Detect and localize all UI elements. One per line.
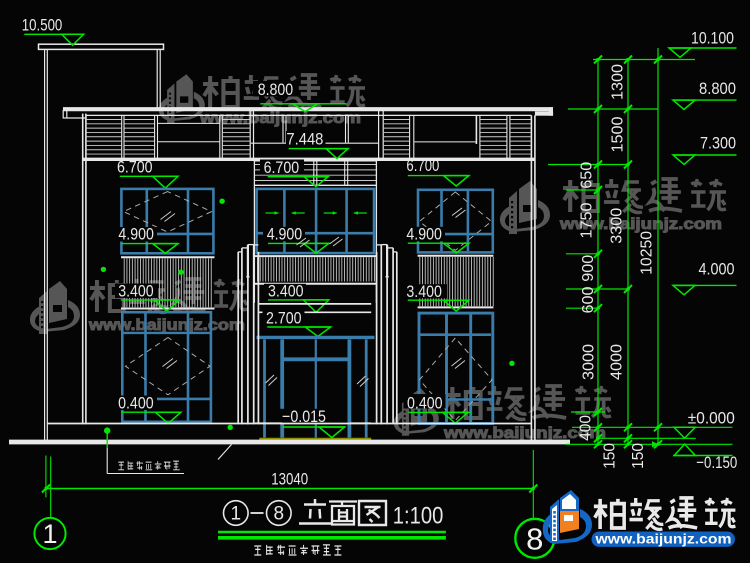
svg-text:4.900: 4.900 — [406, 225, 442, 244]
svg-text:150: 150 — [602, 443, 619, 469]
svg-text:www.baijunjz.com: www.baijunjz.com — [199, 110, 361, 127]
svg-text:±0.000: ±0.000 — [688, 408, 735, 427]
svg-text:900: 900 — [580, 254, 597, 281]
svg-text:7.448: 7.448 — [286, 130, 323, 149]
svg-text:4.900: 4.900 — [267, 224, 303, 243]
svg-text:1:100: 1:100 — [393, 503, 444, 530]
svg-text:www.baijunjz.com: www.baijunjz.com — [594, 532, 731, 547]
svg-text:1: 1 — [42, 519, 57, 549]
svg-text:600: 600 — [580, 286, 597, 313]
svg-text:4.000: 4.000 — [699, 259, 735, 278]
svg-text:3300: 3300 — [609, 207, 626, 243]
svg-text:8: 8 — [274, 504, 285, 525]
svg-text:8.800: 8.800 — [258, 80, 294, 99]
svg-text:13040: 13040 — [271, 470, 308, 488]
svg-text:6.700: 6.700 — [117, 157, 153, 176]
svg-text:1300: 1300 — [610, 64, 627, 100]
svg-text:3.400: 3.400 — [406, 282, 442, 301]
svg-text:150: 150 — [630, 443, 647, 469]
svg-text:1500: 1500 — [610, 116, 627, 152]
svg-text:1750: 1750 — [579, 202, 596, 238]
svg-text:10.500: 10.500 — [22, 16, 63, 35]
svg-text:400: 400 — [578, 415, 595, 441]
svg-text:650: 650 — [579, 161, 596, 188]
svg-text:8.800: 8.800 — [699, 79, 736, 98]
svg-text:10250: 10250 — [639, 231, 656, 275]
svg-text:0.400: 0.400 — [118, 394, 154, 413]
svg-text:6.700: 6.700 — [406, 156, 439, 175]
svg-text:3.400: 3.400 — [268, 281, 304, 300]
svg-text:8: 8 — [526, 522, 543, 557]
svg-text:www.baijunjz.com: www.baijunjz.com — [88, 317, 245, 334]
svg-text:6.700: 6.700 — [264, 158, 300, 177]
svg-text:3000: 3000 — [581, 344, 598, 380]
svg-text:2.700: 2.700 — [266, 308, 302, 327]
svg-text:4.900: 4.900 — [118, 225, 153, 244]
svg-text:10.100: 10.100 — [691, 28, 734, 47]
svg-text:0.400: 0.400 — [407, 393, 443, 412]
svg-text:4000: 4000 — [609, 344, 626, 380]
svg-text:1: 1 — [231, 504, 242, 525]
svg-text:3.400: 3.400 — [118, 281, 154, 300]
svg-text:7.300: 7.300 — [700, 133, 736, 152]
